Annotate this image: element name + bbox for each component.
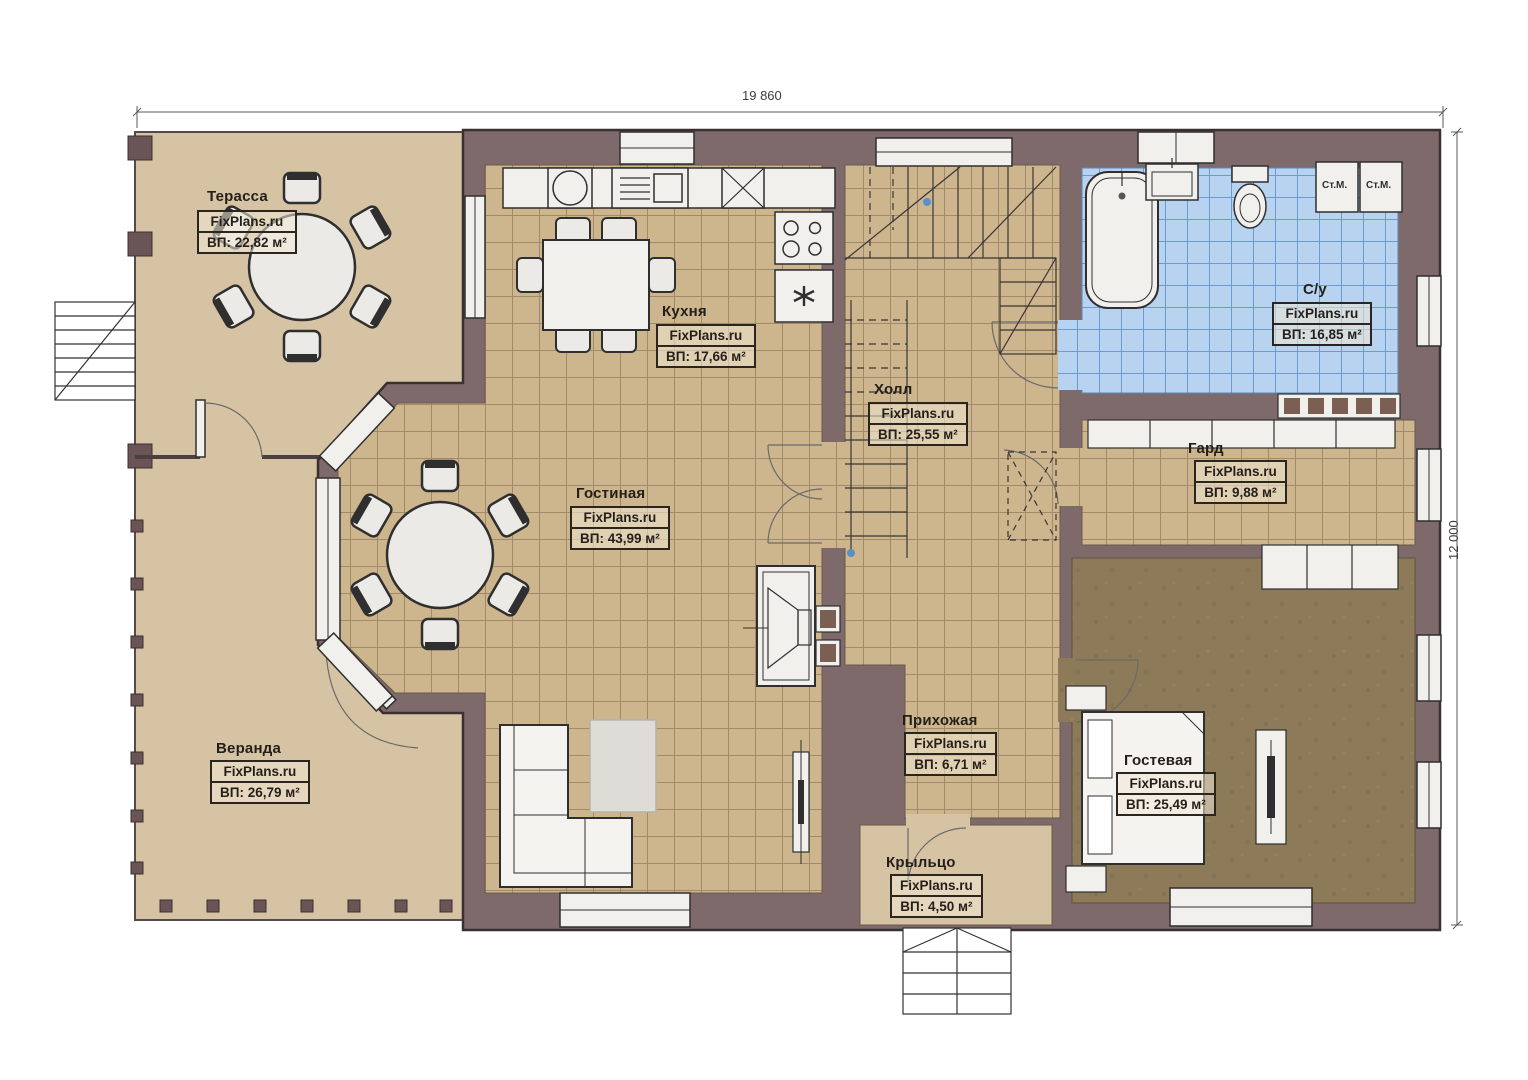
bathroom-sink [1146, 158, 1198, 200]
exterior-stairs-porch [903, 928, 1011, 1014]
kitchen-stove [775, 212, 833, 264]
exterior-stairs-left [55, 302, 135, 400]
kitchen-counter [503, 168, 835, 208]
room-label-guest: FixPlans.ru ВП: 25,49 м² [1116, 772, 1216, 816]
room-name-veranda: Веранда [216, 740, 281, 757]
watermark: FixPlans.ru [212, 762, 308, 781]
watermark: FixPlans.ru [199, 212, 295, 231]
room-label-living: FixPlans.ru ВП: 43,99 м² [570, 506, 670, 550]
room-area-living: ВП: 43,99 м² [572, 527, 668, 548]
room-area-guest: ВП: 25,49 м² [1118, 793, 1214, 814]
room-label-kitchen: FixPlans.ru ВП: 17,66 м² [656, 324, 756, 368]
living-tv [793, 740, 809, 864]
dimension-height: 12 000 [1446, 520, 1461, 560]
room-area-veranda: ВП: 26,79 м² [212, 781, 308, 802]
floor-plan-page: 19 860 12 000 Терасса FixPlans.ru ВП: 22… [0, 0, 1528, 1080]
room-area-terrace: ВП: 22,82 м² [199, 231, 295, 252]
watermark: FixPlans.ru [1118, 774, 1214, 793]
watermark: FixPlans.ru [658, 326, 754, 345]
washer-label-2: Ст.М. [1366, 180, 1391, 191]
room-area-entry: ВП: 6,71 м² [906, 753, 995, 774]
coffee-table [590, 720, 656, 812]
toilet [1232, 166, 1268, 228]
room-label-porch: FixPlans.ru ВП: 4,50 м² [890, 874, 983, 918]
watermark: FixPlans.ru [892, 876, 981, 895]
room-name-living: Гостиная [576, 485, 645, 502]
room-name-terrace: Терасса [207, 188, 268, 205]
kitchen-fridge [775, 270, 833, 322]
watermark: FixPlans.ru [1196, 462, 1285, 481]
watermark: FixPlans.ru [1274, 304, 1370, 323]
watermark: FixPlans.ru [572, 508, 668, 527]
room-name-hall: Холл [874, 381, 912, 398]
guest-tv [1256, 730, 1286, 844]
dimension-width: 19 860 [742, 88, 782, 103]
room-name-porch: Крыльцо [886, 854, 956, 871]
floor-plan-drawing [0, 0, 1528, 1080]
room-name-entry: Прихожая [902, 712, 978, 729]
room-name-guest: Гостевая [1124, 752, 1192, 769]
room-label-terrace: FixPlans.ru ВП: 22,82 м² [197, 210, 297, 254]
room-name-bathroom: С/у [1303, 281, 1327, 298]
room-label-bathroom: FixPlans.ru ВП: 16,85 м² [1272, 302, 1372, 346]
washer-label-1: Ст.М. [1322, 180, 1347, 191]
terrace-veranda-door [196, 400, 205, 457]
room-name-wardrobe: Гард [1188, 440, 1224, 457]
room-label-veranda: FixPlans.ru ВП: 26,79 м² [210, 760, 310, 804]
room-area-wardrobe: ВП: 9,88 м² [1196, 481, 1285, 502]
room-area-bathroom: ВП: 16,85 м² [1274, 323, 1370, 344]
bathroom-radiator [1278, 394, 1400, 418]
room-label-hall: FixPlans.ru ВП: 25,55 м² [868, 402, 968, 446]
room-area-kitchen: ВП: 17,66 м² [658, 345, 754, 366]
room-name-kitchen: Кухня [662, 303, 707, 320]
room-area-hall: ВП: 25,55 м² [870, 423, 966, 444]
room-label-wardrobe: FixPlans.ru ВП: 9,88 м² [1194, 460, 1287, 504]
room-area-porch: ВП: 4,50 м² [892, 895, 981, 916]
watermark: FixPlans.ru [870, 404, 966, 423]
room-label-entry: FixPlans.ru ВП: 6,71 м² [904, 732, 997, 776]
watermark: FixPlans.ru [906, 734, 995, 753]
